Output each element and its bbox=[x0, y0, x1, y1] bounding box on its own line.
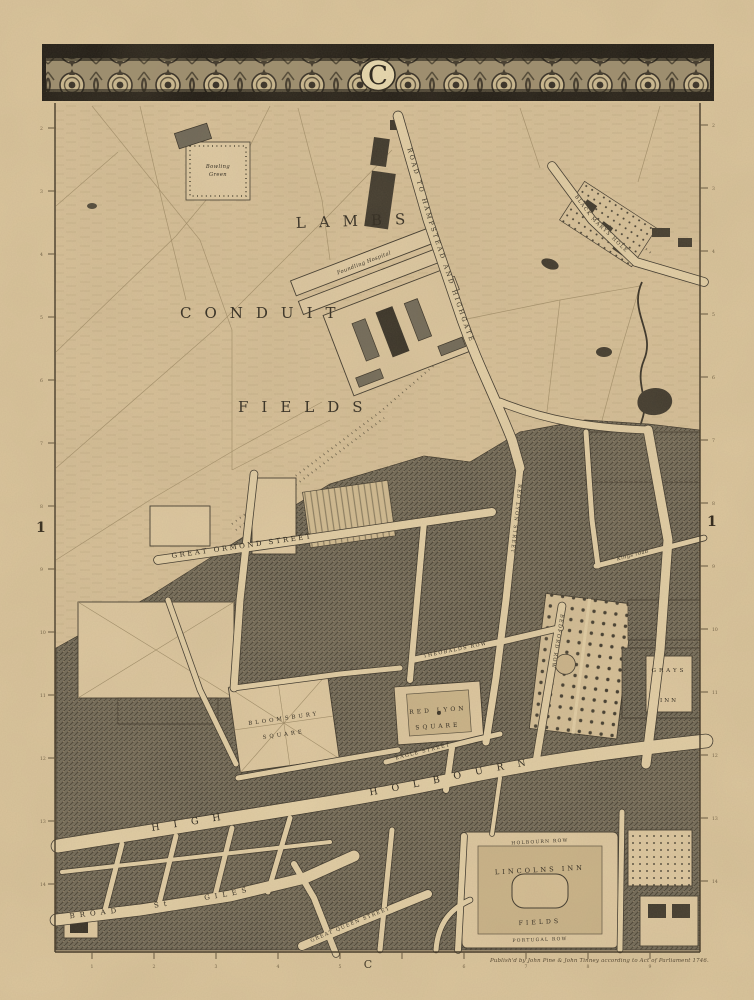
rocque-map-sheet-c: Bowling Green Foundling Hospital bbox=[0, 0, 754, 1000]
map-photo: Bowling Green Foundling Hospital bbox=[0, 0, 754, 1000]
paper-grain-overlay bbox=[0, 0, 754, 1000]
